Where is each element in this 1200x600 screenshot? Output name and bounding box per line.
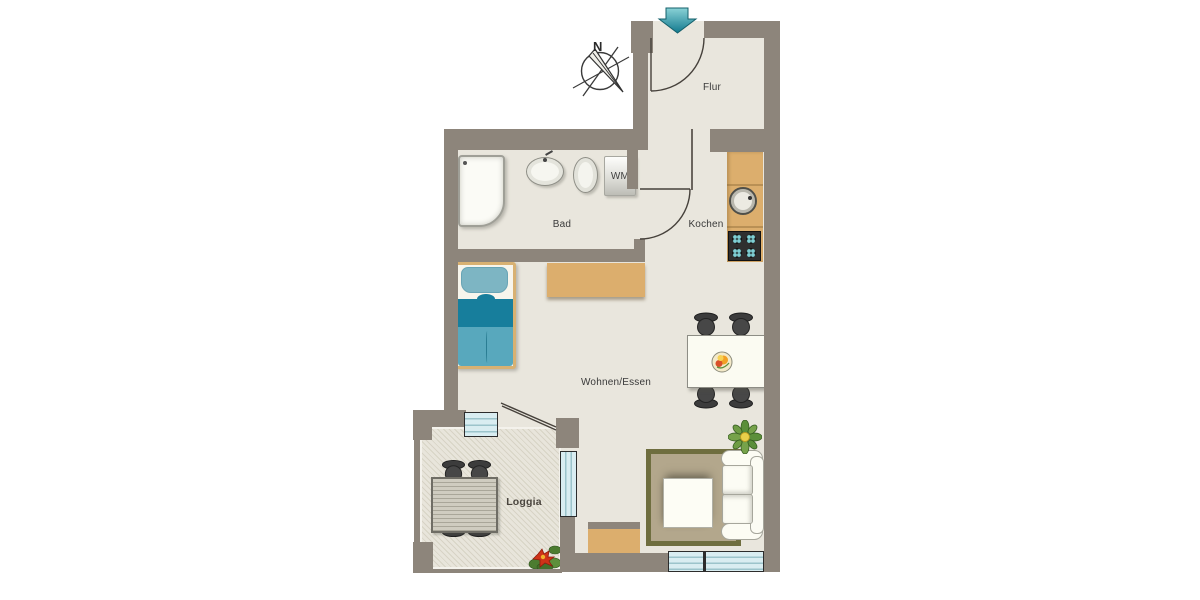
stove-burner (732, 248, 742, 258)
compass-north-label: N (593, 39, 602, 54)
sink-faucet-icon (543, 158, 547, 162)
right-outer-wall (764, 21, 780, 572)
room-label-kochen: Kochen (683, 219, 729, 230)
stove-burner (746, 248, 756, 258)
flur-floor (648, 21, 764, 140)
dining-chair (693, 312, 719, 336)
kitchen-counter-divider (727, 184, 763, 186)
bed-pillow (461, 267, 508, 293)
stove-burner (746, 234, 756, 244)
living-room-window-mullion (703, 551, 706, 572)
lowboard (588, 529, 640, 555)
kitchen-faucet-icon (748, 196, 752, 200)
flur-partition (691, 129, 693, 190)
dining-chair (728, 312, 754, 336)
sofa-cushion (722, 465, 753, 495)
loggia-bottomleft-block (413, 542, 433, 573)
room-label-flur: Flur (690, 82, 734, 93)
bathtub (458, 155, 505, 227)
room-label-loggia: Loggia (502, 496, 546, 508)
kitchen-sink (729, 187, 757, 215)
dining-table (687, 335, 765, 388)
living-room-window (668, 551, 764, 572)
floor-plan: WM (0, 0, 1200, 600)
lowboard-top (588, 522, 640, 529)
room-label-bad: Bad (543, 219, 581, 230)
bed-blanket-fold (458, 299, 513, 327)
loggia-left-wall (414, 427, 420, 544)
flur-kochen-wall (710, 129, 766, 152)
bad-door-stub (634, 239, 645, 262)
toilet (573, 157, 598, 193)
stove-burner (732, 234, 742, 244)
kitchen-counter-divider2 (727, 226, 763, 228)
loggia-right-window (560, 451, 577, 517)
room-label-wohnen-essen: Wohnen/Essen (578, 377, 654, 388)
dining-chair (693, 385, 719, 409)
coffee-table (663, 478, 713, 528)
bad-bottom-wall (444, 249, 645, 262)
loggia-bottom-edge (433, 569, 562, 573)
loggia-right-block (556, 418, 579, 448)
bad-top-wall (444, 129, 648, 150)
bathtub-drain (463, 161, 467, 165)
left-outer-wall (444, 129, 458, 412)
flur-left-wall (633, 38, 648, 140)
sofa-cushion (722, 494, 753, 524)
bed-blanket-crease (486, 331, 489, 363)
loggia-top-window (464, 412, 498, 437)
loggia-table (431, 477, 498, 533)
dining-chair (728, 385, 754, 409)
sideboard (547, 263, 645, 297)
bad-right-wall (627, 150, 638, 189)
compass-icon: N (566, 34, 636, 106)
